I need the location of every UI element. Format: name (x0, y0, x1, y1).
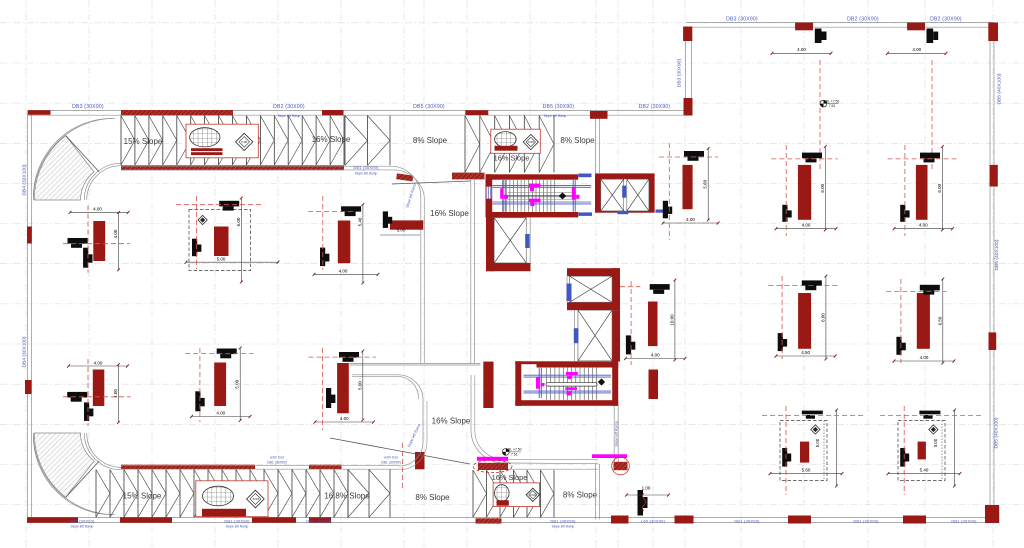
svg-text:8% Slope: 8% Slope (560, 136, 595, 145)
svg-text:DB1 (30X90): DB1 (30X90) (951, 518, 977, 523)
svg-text:5.00: 5.00 (357, 381, 362, 390)
svg-text:DB5 (40X100): DB5 (40X100) (994, 417, 1000, 448)
svg-text:DB3 (30X90): DB3 (30X90) (72, 104, 104, 110)
svg-text:5.00: 5.00 (235, 379, 240, 388)
svg-text:8% Slope: 8% Slope (415, 493, 450, 502)
svg-text:8% Slope: 8% Slope (413, 136, 448, 145)
svg-text:15% Slope: 15% Slope (123, 492, 162, 501)
svg-text:DB2 (30X60): DB2 (30X60) (69, 518, 95, 523)
svg-text:5.40: 5.40 (357, 217, 362, 226)
svg-text:8% Slope: 8% Slope (563, 491, 598, 500)
svg-text:DB2 (30X90): DB2 (30X90) (273, 104, 305, 110)
svg-text:5.60: 5.60 (703, 179, 708, 188)
svg-text:DB1 (30X90): DB1 (30X90) (353, 165, 379, 170)
svg-text:with Dat: with Dat (384, 456, 398, 460)
svg-text:0.00: 0.00 (241, 140, 247, 144)
svg-text:DB1 (30X90): DB1 (30X90) (550, 518, 576, 523)
svg-text:-5.00: -5.00 (252, 497, 259, 501)
svg-text:16% Slope: 16% Slope (312, 135, 351, 144)
svg-text:4.00: 4.00 (920, 355, 929, 360)
svg-text:4.00: 4.00 (912, 47, 921, 52)
svg-text:Slope left Ramp: Slope left Ramp (544, 114, 567, 118)
svg-text:16% Slope: 16% Slope (494, 154, 530, 163)
svg-text:16% Slope: 16% Slope (492, 473, 528, 482)
svg-text:4.00: 4.00 (94, 360, 103, 365)
svg-text:5.00: 5.00 (397, 227, 406, 232)
svg-text:DB1 (30X90): DB1 (30X90) (853, 518, 879, 523)
svg-text:Slope left Ramp: Slope left Ramp (552, 525, 575, 529)
svg-text:DB1 (30X90): DB1 (30X90) (381, 461, 401, 465)
svg-text:L60 (30X90): L60 (30X90) (641, 518, 666, 523)
svg-text:BL +7.50: BL +7.50 (508, 448, 522, 452)
svg-text:Slope left Ramp: Slope left Ramp (615, 421, 619, 447)
svg-text:6.00: 6.00 (236, 217, 241, 226)
svg-text:DB2 (30X90): DB2 (30X90) (847, 17, 879, 23)
svg-text:4.00: 4.00 (216, 411, 225, 416)
svg-text:16% Slope: 16% Slope (432, 417, 471, 426)
svg-text:5.60: 5.60 (802, 468, 811, 473)
svg-text:7.51: 7.51 (511, 452, 518, 456)
svg-text:6.00: 6.00 (820, 313, 825, 322)
svg-text:DB5 (30X90): DB5 (30X90) (543, 104, 575, 110)
svg-text:0.00: 0.00 (528, 140, 534, 144)
svg-text:DB1 (30X90): DB1 (30X90) (224, 518, 250, 523)
svg-text:16.8% Slope: 16.8% Slope (324, 492, 370, 501)
svg-text:4.00: 4.00 (651, 352, 660, 357)
svg-text:4.00: 4.00 (802, 223, 811, 228)
svg-text:DB2 (30X90): DB2 (30X90) (930, 17, 962, 23)
svg-text:DB2 (30X90): DB2 (30X90) (639, 104, 671, 110)
svg-text:BL +7.50: BL +7.50 (826, 99, 840, 103)
svg-text:5.00: 5.00 (815, 438, 820, 447)
svg-text:4.00: 4.00 (93, 207, 102, 212)
svg-text:DB5 (40X100): DB5 (40X100) (994, 239, 1000, 270)
svg-text:5.00: 5.00 (217, 256, 226, 261)
svg-text:10.00: 10.00 (669, 314, 674, 326)
svg-text:Slope left Ramp: Slope left Ramp (278, 114, 301, 118)
svg-text:4.00: 4.00 (339, 269, 348, 274)
svg-text:7.51: 7.51 (829, 104, 836, 108)
svg-text:DB5 (30X90): DB5 (30X90) (413, 104, 445, 110)
svg-text:16% Slope: 16% Slope (430, 209, 469, 218)
svg-text:4.00: 4.00 (919, 223, 928, 228)
svg-text:6.00: 6.00 (820, 183, 825, 192)
svg-text:5.00: 5.00 (933, 438, 938, 447)
svg-text:DB1 (30X90): DB1 (30X90) (734, 518, 760, 523)
svg-text:0.00: 0.00 (530, 493, 536, 497)
svg-text:DB1 (30X90): DB1 (30X90) (306, 518, 332, 523)
svg-text:Slope left Ramp: Slope left Ramp (226, 525, 249, 529)
svg-text:6.50: 6.50 (937, 316, 942, 325)
svg-text:5.40: 5.40 (920, 468, 929, 473)
svg-text:4.50: 4.50 (801, 350, 810, 355)
svg-text:DB1 (30X90): DB1 (30X90) (267, 461, 287, 465)
svg-text:DB4 (30X100): DB4 (30X100) (22, 336, 28, 367)
svg-text:DB3 (30X90): DB3 (30X90) (726, 17, 758, 23)
svg-text:6.00: 6.00 (937, 183, 942, 192)
svg-text:4.00: 4.00 (113, 229, 118, 238)
svg-text:with Dat: with Dat (270, 456, 284, 460)
svg-text:1.00: 1.00 (642, 486, 651, 491)
svg-text:4.00: 4.00 (797, 47, 806, 52)
svg-text:Slope left Ramp: Slope left Ramp (355, 172, 378, 176)
svg-text:DB5 (40X100): DB5 (40X100) (997, 73, 1003, 104)
svg-text:DB3 (30X90): DB3 (30X90) (677, 58, 683, 87)
svg-text:4.00: 4.00 (340, 416, 349, 421)
svg-text:4.00: 4.00 (686, 217, 695, 222)
svg-text:15% Slope: 15% Slope (124, 137, 163, 146)
svg-text:DB4 (30X100): DB4 (30X100) (22, 164, 28, 195)
svg-text:Slope left Ramp: Slope left Ramp (71, 525, 94, 529)
